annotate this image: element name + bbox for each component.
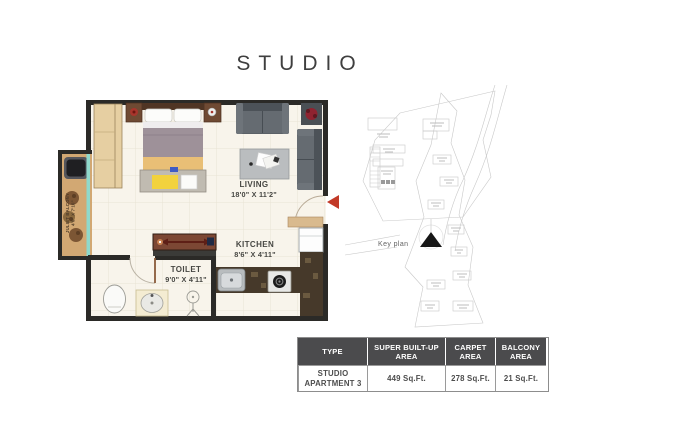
fridge [299, 228, 323, 252]
kitchen-dims: 8'6" X 4'11" [234, 250, 276, 259]
balcony-label: JULIET BALCONY [65, 193, 70, 233]
col-header-super-builtup: SUPER BUILT-UP AREA [367, 338, 445, 365]
cell-balcony: 21 Sq.Ft. [495, 365, 546, 391]
toilet-basin [136, 290, 168, 316]
col-header-balcony: BALCONY AREA [495, 338, 546, 365]
living-label: LIVING [239, 180, 268, 189]
toilet-wc [104, 285, 126, 313]
stove [268, 271, 291, 292]
living-dims: 18'0" X 11'2" [231, 190, 277, 199]
floorplan-drawing: JULIET BALCONY 4'0" X 7'10" [55, 95, 347, 330]
sofa-right [297, 129, 322, 190]
plant-table [301, 103, 322, 125]
col-header-type: TYPE [298, 338, 367, 365]
coffee-table [240, 149, 289, 179]
keyplan-label: Key plan [378, 241, 408, 248]
kitchen-island [153, 234, 216, 250]
north-arrow-icon [419, 219, 443, 249]
cell-super-builtup: 449 Sq.Ft. [367, 365, 445, 391]
balcony-dims: 4'0" X 7'10" [71, 200, 76, 226]
entry-arrow-icon [327, 195, 339, 209]
cell-type: STUDIO APARTMENT 3 [298, 365, 367, 391]
area-table: TYPE SUPER BUILT-UP AREA CARPET AREA BAL… [297, 337, 549, 392]
entry-shelf [288, 217, 323, 227]
sofa-top [236, 103, 289, 134]
toilet-label: TOILET [171, 265, 202, 274]
floorplan-page: STUDIO JULIET BALCONY 4'0" X 7'10" [0, 0, 700, 441]
col-header-carpet: CARPET AREA [445, 338, 495, 365]
key-plan: Key plan [345, 85, 560, 340]
kitchen-label: KITCHEN [236, 240, 274, 249]
kitchen-sink [218, 269, 245, 291]
cell-carpet: 278 Sq.Ft. [445, 365, 495, 391]
toilet-dims: 9'0" X 4'11" [165, 275, 207, 284]
balcony-window [87, 154, 91, 256]
page-title: STUDIO [175, 52, 425, 76]
wardrobe [94, 104, 122, 188]
